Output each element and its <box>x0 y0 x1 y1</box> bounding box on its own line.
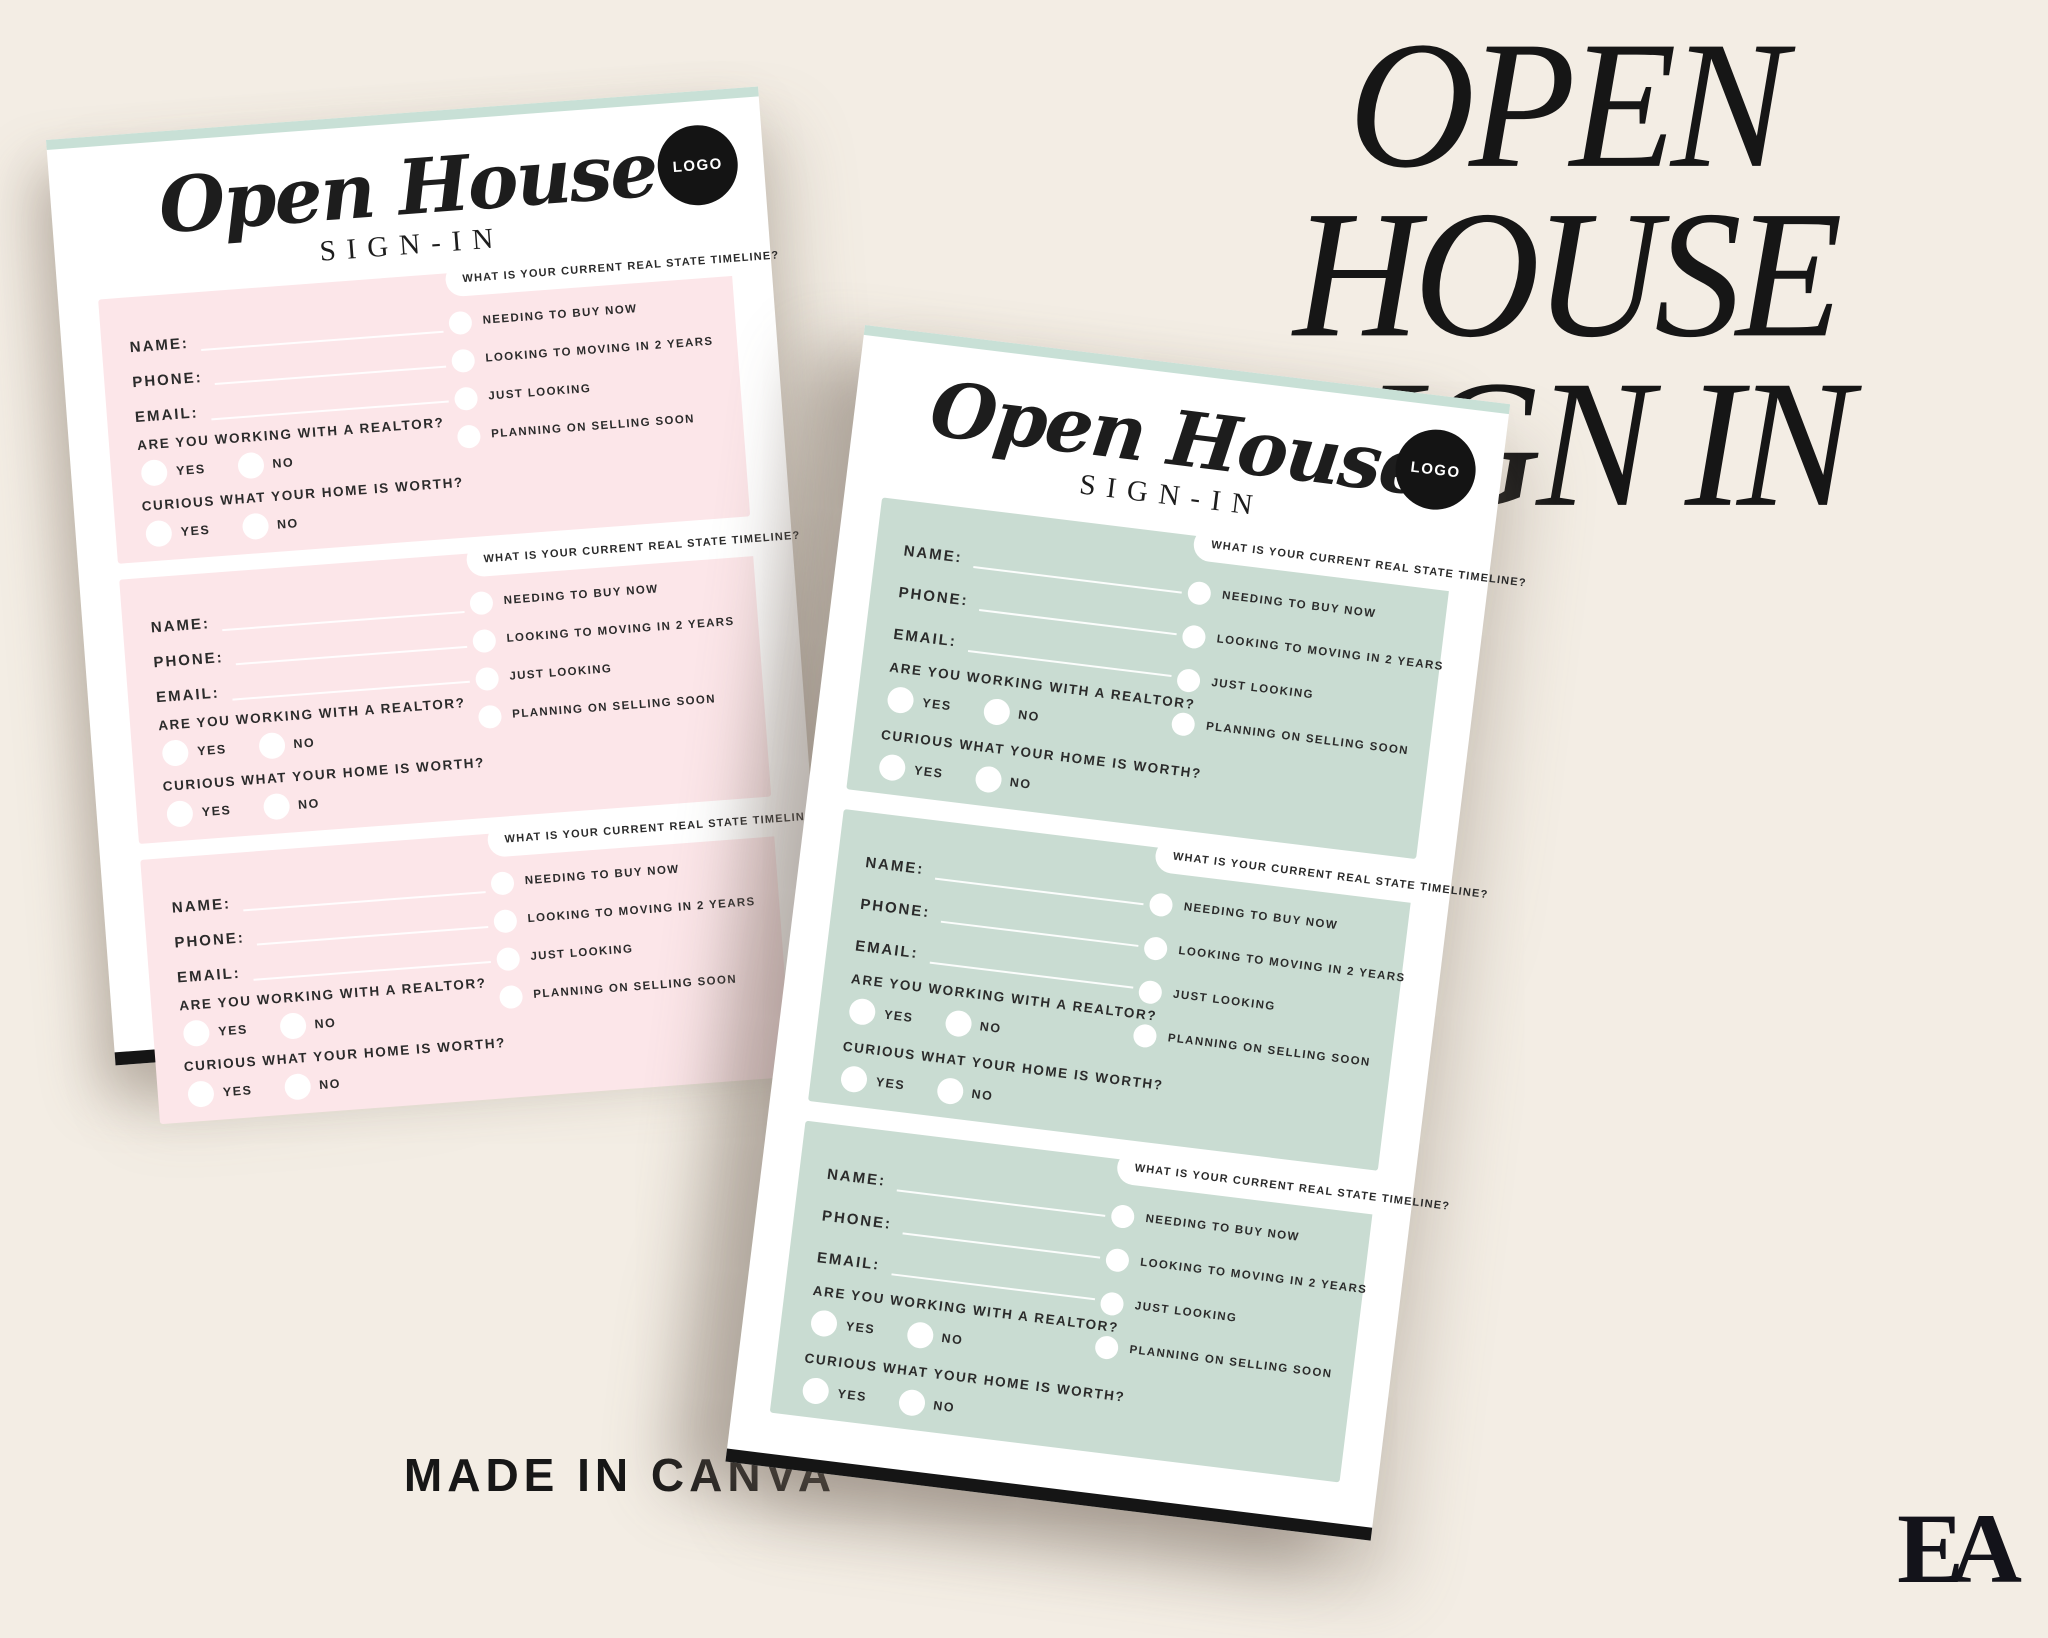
timeline-option-label: PLANNING ON SELLING SOON <box>1205 721 1409 758</box>
checkbox-circle <box>475 666 500 691</box>
timeline-option-selling-soon: PLANNING ON SELLING SOON <box>1094 1334 1334 1386</box>
checkbox-circle <box>493 908 518 933</box>
timeline-option-label: NEEDING TO BUY NOW <box>1221 590 1376 621</box>
checkbox-circle <box>499 984 524 1009</box>
checkbox-circle <box>283 1072 311 1100</box>
entry-fields-column: NAME: PHONE: EMAIL: ARE YOU WORKING WITH… <box>799 1143 1110 1435</box>
checkbox-circle <box>454 386 479 411</box>
timeline-option-just-looking: JUST LOOKING <box>454 368 721 411</box>
headline-line-1: OPEN HOUSE <box>1085 20 2045 359</box>
timeline-option-just-looking: JUST LOOKING <box>1100 1291 1340 1343</box>
realtor-no-option: NO <box>279 1009 338 1039</box>
checkbox-circle <box>469 590 494 615</box>
realtor-yes-option: YES <box>848 997 915 1031</box>
yes-label: YES <box>922 695 953 712</box>
timeline-option-label: NEEDING TO BUY NOW <box>1145 1213 1300 1244</box>
checkbox-circle <box>145 519 173 547</box>
no-label: NO <box>1009 775 1032 792</box>
checkbox-circle <box>472 628 497 653</box>
timeline-option-moving-2-years: LOOKING TO MOVING IN 2 YEARS <box>1105 1247 1345 1299</box>
timeline-option-just-looking: JUST LOOKING <box>1176 667 1416 719</box>
timeline-option-just-looking: JUST LOOKING <box>496 928 763 971</box>
checkbox-circle <box>279 1012 307 1040</box>
yes-label: YES <box>875 1075 906 1092</box>
realtor-yes-option: YES <box>886 685 953 719</box>
home-worth-yes-option: YES <box>166 797 232 828</box>
home-worth-yes-option: YES <box>878 753 945 787</box>
timeline-option-just-looking: JUST LOOKING <box>475 648 742 691</box>
timeline-option-label: JUST LOOKING <box>1211 677 1315 701</box>
yes-label: YES <box>883 1007 914 1024</box>
yes-label: YES <box>176 461 206 477</box>
checkbox-circle <box>1094 1334 1120 1360</box>
timeline-option-label: LOOKING TO MOVING IN 2 YEARS <box>1178 945 1406 985</box>
realtor-no-option: NO <box>905 1320 964 1353</box>
phone-label: PHONE: <box>153 649 224 671</box>
yes-label: YES <box>913 763 944 780</box>
checkbox-circle <box>166 799 194 827</box>
timeline-option-label: JUST LOOKING <box>1134 1300 1238 1324</box>
checkbox-circle <box>905 1320 934 1349</box>
timeline-option-selling-soon: PLANNING ON SELLING SOON <box>1171 711 1411 763</box>
timeline-option-selling-soon: PLANNING ON SELLING SOON <box>499 966 766 1009</box>
timeline-option-label: NEEDING TO BUY NOW <box>1183 901 1338 932</box>
checkbox-circle <box>161 739 189 767</box>
signin-entry-section: NAME: PHONE: EMAIL: ARE YOU WORKING WITH… <box>140 812 792 1124</box>
home-worth-no-option: NO <box>262 790 321 820</box>
yes-label: YES <box>180 522 210 538</box>
checkbox-circle <box>1149 892 1175 918</box>
email-label: EMAIL: <box>893 625 958 650</box>
checkbox-circle <box>840 1064 869 1093</box>
checkbox-circle <box>182 1019 210 1047</box>
home-worth-yes-option: YES <box>145 516 211 547</box>
timeline-option-selling-soon: PLANNING ON SELLING SOON <box>478 686 745 729</box>
timeline-column: WHAT IS YOUR CURRENT REAL STATE TIMELINE… <box>480 803 771 1084</box>
no-label: NO <box>979 1019 1002 1036</box>
timeline-option-label: LOOKING TO MOVING IN 2 YEARS <box>527 896 756 925</box>
timeline-option-buy-now: NEEDING TO BUY NOW <box>1149 892 1389 944</box>
timeline-option-moving-2-years: LOOKING TO MOVING IN 2 YEARS <box>1143 935 1383 987</box>
phone-label: PHONE: <box>859 895 931 920</box>
no-label: NO <box>319 1076 342 1092</box>
realtor-no-option: NO <box>258 729 317 759</box>
signin-entry-section: NAME: PHONE: EMAIL: ARE YOU WORKING WITH… <box>808 809 1414 1171</box>
timeline-option-label: PLANNING ON SELLING SOON <box>512 693 717 720</box>
checkbox-circle <box>448 310 473 335</box>
entry-fields-column: NAME: PHONE: EMAIL: ARE YOU WORKING WITH… <box>170 854 500 1108</box>
checkbox-circle <box>935 1076 964 1105</box>
home-worth-yes-option: YES <box>801 1376 868 1410</box>
home-worth-no-option: NO <box>974 764 1033 797</box>
realtor-yes-option: YES <box>161 736 227 767</box>
timeline-option-label: JUST LOOKING <box>488 383 592 403</box>
yes-label: YES <box>197 742 227 758</box>
phone-label: PHONE: <box>132 368 203 390</box>
checkbox-circle <box>258 731 286 759</box>
brand-logo: EA <box>1897 1491 2022 1606</box>
email-label: EMAIL: <box>134 404 199 426</box>
timeline-option-label: LOOKING TO MOVING IN 2 YEARS <box>506 616 735 645</box>
yes-label: YES <box>845 1319 876 1336</box>
timeline-option-label: JUST LOOKING <box>1172 989 1276 1013</box>
checkbox-circle <box>1133 1023 1159 1049</box>
home-worth-yes-option: YES <box>187 1077 253 1108</box>
name-label: NAME: <box>826 1165 887 1189</box>
home-worth-no-option: NO <box>935 1076 994 1109</box>
checkbox-circle <box>886 685 915 714</box>
name-label: NAME: <box>903 542 964 566</box>
yes-label: YES <box>222 1083 252 1099</box>
mockup-canvas: OPEN HOUSE SIGN IN Open House SIGN-IN LO… <box>0 0 2048 1638</box>
home-worth-no-option: NO <box>241 510 300 540</box>
checkbox-circle <box>982 697 1011 726</box>
yes-label: YES <box>837 1386 868 1403</box>
realtor-no-option: NO <box>982 697 1041 730</box>
timeline-option-label: PLANNING ON SELLING SOON <box>491 413 696 440</box>
signin-entry-section: NAME: PHONE: EMAIL: ARE YOU WORKING WITH… <box>119 532 771 844</box>
realtor-yes-option: YES <box>810 1308 877 1342</box>
name-label: NAME: <box>171 895 231 916</box>
signin-entry-section: NAME: PHONE: EMAIL: ARE YOU WORKING WITH… <box>98 252 750 564</box>
timeline-option-moving-2-years: LOOKING TO MOVING IN 2 YEARS <box>451 330 718 373</box>
timeline-column: WHAT IS YOUR CURRENT REAL STATE TIMELINE… <box>1079 1148 1357 1466</box>
no-label: NO <box>314 1015 337 1031</box>
timeline-option-label: PLANNING ON SELLING SOON <box>1129 1344 1333 1381</box>
checkbox-circle <box>451 348 476 373</box>
phone-label: PHONE: <box>898 584 970 609</box>
checkbox-circle <box>810 1308 839 1337</box>
timeline-option-buy-now: NEEDING TO BUY NOW <box>448 292 715 335</box>
checkbox-circle <box>478 704 503 729</box>
checkbox-circle <box>140 458 168 486</box>
timeline-column: WHAT IS YOUR CURRENT REAL STATE TIMELINE… <box>1117 836 1395 1154</box>
timeline-option-buy-now: NEEDING TO BUY NOW <box>1110 1203 1350 1255</box>
timeline-option-label: JUST LOOKING <box>509 663 613 683</box>
entry-fields-column: NAME: PHONE: EMAIL: ARE YOU WORKING WITH… <box>838 832 1149 1124</box>
timeline-option-moving-2-years: LOOKING TO MOVING IN 2 YEARS <box>472 610 739 653</box>
name-label: NAME: <box>865 854 926 878</box>
home-worth-no-option: NO <box>283 1070 342 1100</box>
timeline-option-label: LOOKING TO MOVING IN 2 YEARS <box>1216 633 1444 673</box>
timeline-option-label: PLANNING ON SELLING SOON <box>1167 1032 1371 1069</box>
checkbox-circle <box>496 946 521 971</box>
timeline-column: WHAT IS YOUR CURRENT REAL STATE TIMELINE… <box>459 523 750 804</box>
checkbox-circle <box>1105 1247 1131 1273</box>
checkbox-circle <box>1100 1291 1126 1317</box>
timeline-option-label: NEEDING TO BUY NOW <box>482 303 638 327</box>
sheet-pink: Open House SIGN-IN LOGO NAME: PHONE: <box>46 86 828 1065</box>
checkbox-circle <box>490 871 515 896</box>
timeline-column: WHAT IS YOUR CURRENT REAL STATE TIMELINE… <box>438 243 729 524</box>
checkbox-circle <box>241 512 269 540</box>
checkbox-circle <box>1182 624 1208 650</box>
timeline-option-label: NEEDING TO BUY NOW <box>503 583 659 607</box>
yes-label: YES <box>201 803 231 819</box>
timeline-option-just-looking: JUST LOOKING <box>1138 979 1378 1031</box>
signin-entry-section: NAME: PHONE: EMAIL: ARE YOU WORKING WITH… <box>770 1120 1376 1482</box>
email-label: EMAIL: <box>177 964 242 986</box>
realtor-yes-option: YES <box>140 456 206 487</box>
checkbox-circle <box>1171 711 1197 737</box>
timeline-option-selling-soon: PLANNING ON SELLING SOON <box>1133 1023 1373 1075</box>
timeline-option-moving-2-years: LOOKING TO MOVING IN 2 YEARS <box>1182 624 1422 676</box>
no-label: NO <box>298 796 321 812</box>
checkbox-circle <box>848 997 877 1026</box>
checkbox-circle <box>187 1080 215 1108</box>
no-label: NO <box>272 455 295 471</box>
no-label: NO <box>933 1398 956 1415</box>
no-label: NO <box>941 1330 964 1347</box>
name-label: NAME: <box>150 615 210 636</box>
no-label: NO <box>293 735 316 751</box>
signin-entry-section: NAME: PHONE: EMAIL: ARE YOU WORKING WITH… <box>846 497 1452 859</box>
entry-fields-column: NAME: PHONE: EMAIL: ARE YOU WORKING WITH… <box>127 293 457 547</box>
home-worth-yes-option: YES <box>840 1064 907 1098</box>
sections: NAME: PHONE: EMAIL: ARE YOU WORKING WITH… <box>724 472 1492 1550</box>
no-label: NO <box>1017 707 1040 724</box>
realtor-no-option: NO <box>944 1009 1003 1042</box>
checkbox-circle <box>974 764 1003 793</box>
checkbox-circle <box>1143 935 1169 961</box>
checkbox-circle <box>944 1009 973 1038</box>
timeline-option-label: LOOKING TO MOVING IN 2 YEARS <box>485 336 714 365</box>
timeline-option-selling-soon: PLANNING ON SELLING SOON <box>457 406 724 449</box>
phone-label: PHONE: <box>174 929 245 951</box>
timeline-option-buy-now: NEEDING TO BUY NOW <box>490 852 757 895</box>
checkbox-circle <box>801 1376 830 1405</box>
checkbox-circle <box>237 451 265 479</box>
checkbox-circle <box>1110 1203 1136 1229</box>
entry-fields-column: NAME: PHONE: EMAIL: ARE YOU WORKING WITH… <box>149 574 479 828</box>
timeline-option-label: PLANNING ON SELLING SOON <box>533 974 738 1001</box>
logo-badge-label: LOGO <box>1410 458 1462 481</box>
home-worth-no-option: NO <box>897 1388 956 1421</box>
sheet-mint: Open House SIGN-IN LOGO NAME: PHONE: <box>725 325 1510 1541</box>
timeline-column: WHAT IS YOUR CURRENT REAL STATE TIMELINE… <box>1155 525 1433 843</box>
realtor-yes-option: YES <box>182 1016 248 1047</box>
sections: NAME: PHONE: EMAIL: ARE YOU WORKING WITH… <box>57 235 834 1153</box>
checkbox-circle <box>878 753 907 782</box>
phone-label: PHONE: <box>821 1207 893 1232</box>
email-label: EMAIL: <box>816 1249 881 1274</box>
entry-fields-column: NAME: PHONE: EMAIL: ARE YOU WORKING WITH… <box>876 520 1187 812</box>
checkbox-circle <box>1187 580 1213 606</box>
timeline-option-buy-now: NEEDING TO BUY NOW <box>1187 580 1427 632</box>
no-label: NO <box>276 516 299 532</box>
realtor-no-option: NO <box>237 449 296 479</box>
timeline-option-label: NEEDING TO BUY NOW <box>524 864 680 888</box>
checkbox-circle <box>457 424 482 449</box>
email-label: EMAIL: <box>155 684 220 706</box>
checkbox-circle <box>1138 979 1164 1005</box>
no-label: NO <box>971 1086 994 1103</box>
logo-badge-label: LOGO <box>672 155 723 176</box>
checkbox-circle <box>262 792 290 820</box>
checkbox-circle <box>897 1388 926 1417</box>
yes-label: YES <box>218 1022 248 1038</box>
timeline-option-moving-2-years: LOOKING TO MOVING IN 2 YEARS <box>493 890 760 933</box>
name-label: NAME: <box>129 334 189 355</box>
email-label: EMAIL: <box>854 937 919 962</box>
checkbox-circle <box>1176 667 1202 693</box>
timeline-option-label: JUST LOOKING <box>530 943 634 963</box>
timeline-option-label: LOOKING TO MOVING IN 2 YEARS <box>1140 1257 1368 1297</box>
timeline-option-buy-now: NEEDING TO BUY NOW <box>469 572 736 615</box>
